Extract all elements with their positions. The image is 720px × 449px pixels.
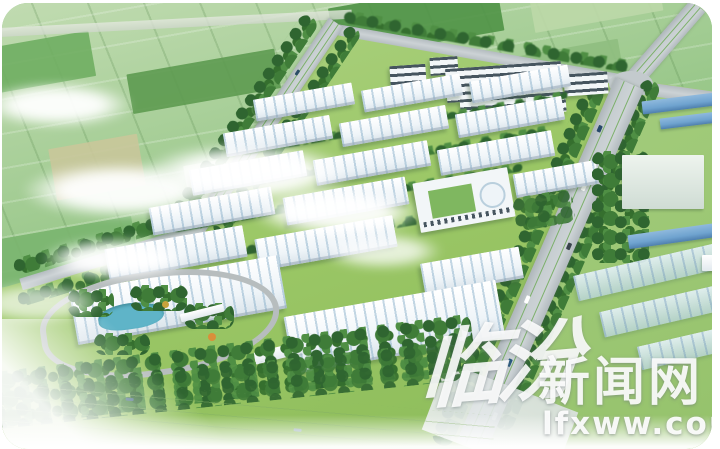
haze-cloud — [252, 188, 422, 236]
car — [524, 295, 531, 304]
autumn-tree — [162, 301, 169, 308]
aerial-rendering-photo: 临汾 新闻网 lfxww.com — [2, 3, 712, 449]
watermark-site-name: 新闻网 — [538, 357, 703, 409]
small-shed — [702, 255, 712, 271]
watermark: 临汾 新闻网 lfxww.com — [420, 339, 712, 449]
haze-cloud — [322, 233, 442, 269]
news-photo-canvas: 临汾 新闻网 lfxww.com — [0, 0, 720, 449]
car — [294, 69, 300, 76]
car — [566, 242, 572, 250]
haze-cloud — [42, 238, 192, 280]
helipad-circle — [477, 180, 507, 210]
farm-patch — [525, 3, 663, 33]
pale-warehouse-east — [622, 155, 704, 209]
watermark-site-url: lfxww.com — [542, 409, 712, 440]
track-trees — [130, 285, 188, 311]
